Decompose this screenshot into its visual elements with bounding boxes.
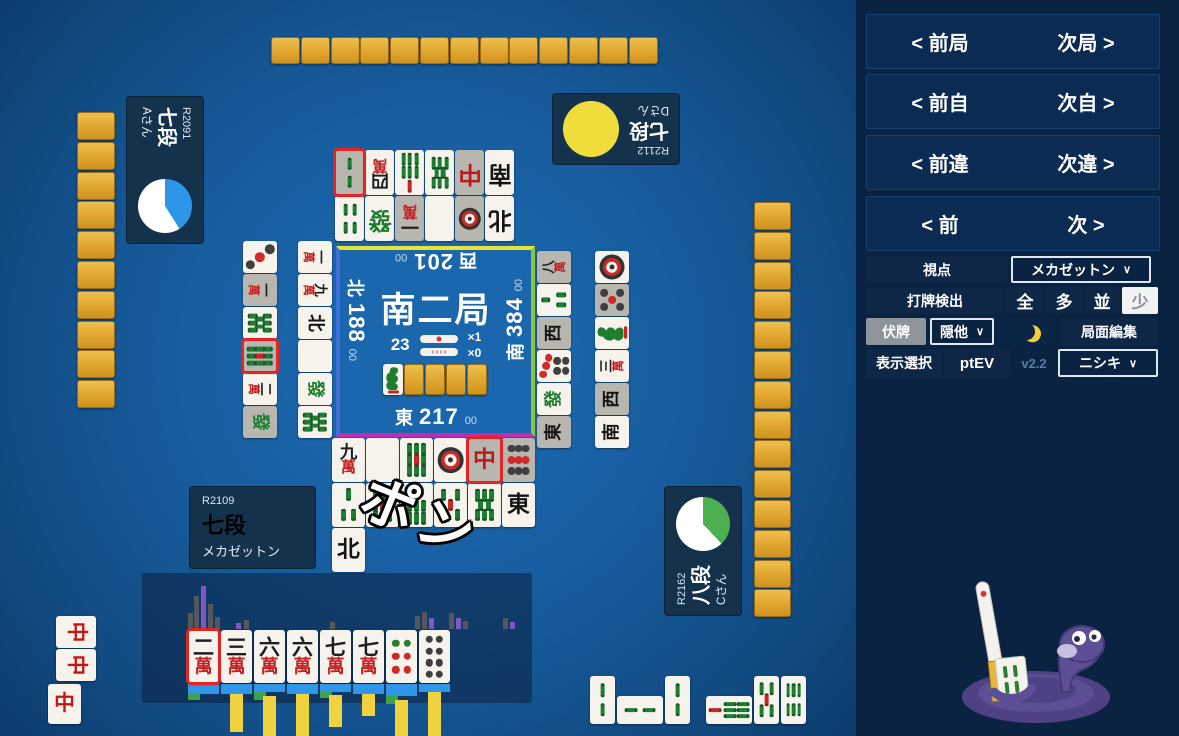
wall-tile-back (77, 231, 115, 259)
wall-tile-back (754, 500, 791, 528)
next-kyoku-button[interactable]: 次局 > (1013, 15, 1159, 68)
hand-tile-7m[interactable]: 七萬 (353, 630, 384, 683)
wall-tile-back (569, 37, 598, 64)
ev-bar-yellow (263, 696, 276, 736)
wall-tile-back (754, 381, 791, 409)
discard-tile-F: 發 (537, 383, 571, 415)
prev-self-turn-button[interactable]: < 前自 (867, 75, 1013, 128)
discard-tile-1p (595, 251, 629, 283)
ev-bar-yellow (230, 694, 243, 732)
step-nav: < 前 次 > (866, 196, 1160, 251)
wall-tile-back (77, 291, 115, 319)
ev-bar-blue (320, 684, 351, 692)
policy-bar-gray (463, 621, 468, 629)
discard-tile-N: 北 (485, 196, 514, 241)
player-panel-top: R2112 七段 Dさん (553, 94, 679, 164)
discard-tile-8s (425, 150, 454, 195)
discard-tile-1m: 一萬 (395, 196, 424, 241)
hundred-stick-icon (420, 348, 458, 356)
hide-others-select[interactable]: 隠他∨ (930, 318, 994, 345)
control-panel: < 前局 次局 > < 前自 次自 > < 前違 次違 > < 前 次 > 視点… (856, 0, 1179, 736)
discard-detect-label: 打牌検出 (866, 287, 1004, 314)
wall-tile-back (754, 262, 791, 290)
mahjong-replay-viewer: { "nav": {"rows": [ {"prev": "< 前局", "ne… (0, 0, 1179, 736)
discard-tile-1m: 一萬 (298, 241, 332, 273)
wall-tile-back (539, 37, 568, 64)
discard-tile-1s (595, 317, 629, 349)
discard-tile-7s (395, 150, 424, 195)
wall-tile-back (509, 37, 538, 64)
wall-tile-back (754, 232, 791, 260)
point-sticks (420, 335, 458, 356)
wall-tile-back (450, 37, 479, 64)
policy-bar-gray (503, 618, 508, 629)
dora-tile-back (446, 364, 466, 395)
sticks-row: 23 ×1 ×0 (346, 330, 526, 360)
ev-bar-green (188, 694, 200, 700)
model-version: v2.2 (1012, 349, 1056, 377)
wall-tile-back (77, 321, 115, 349)
discard-tile-N: 北 (332, 528, 365, 572)
discard-tile-9m: 九萬 (332, 438, 365, 482)
ev-bar-blue (221, 684, 252, 694)
discard-tile-3s (537, 284, 571, 316)
prev-kyoku-button[interactable]: < 前局 (867, 15, 1013, 68)
policy-bar-gray (215, 617, 220, 629)
self-turn-nav: < 前自 次自 > (866, 74, 1160, 129)
discard-tile-9s (243, 340, 277, 372)
policy-bar-gray (188, 613, 193, 629)
policy-bar-gray (208, 604, 213, 629)
policy-bar-purple (236, 623, 241, 629)
kyoku-nav: < 前局 次局 > (866, 14, 1160, 69)
policy-bar-gray (449, 613, 454, 629)
placement-pie-chart (563, 101, 619, 157)
meld-tile-7s (706, 696, 752, 724)
wall-tile-back (271, 37, 300, 64)
hand-tile-8p[interactable] (419, 630, 450, 683)
discard-tile-P (425, 196, 454, 241)
night-mode-toggle[interactable] (996, 318, 1056, 345)
dora-indicator-tile-1s (383, 364, 403, 395)
wall-tile-back (754, 202, 791, 230)
player-panel-left: R2091 七段 Aさん (127, 97, 203, 243)
wall-tile-back (77, 261, 115, 289)
chevron-down-icon: ∨ (976, 325, 984, 338)
wall-tile-back (754, 351, 791, 379)
wall-tile-back (754, 560, 791, 588)
player-rating: R2109 (202, 495, 234, 507)
discard-tile-4s (335, 196, 364, 241)
meld-tile-2s (617, 696, 663, 724)
board-edit-button[interactable]: 局面編集 (1060, 318, 1158, 345)
wall-tile-back (390, 37, 419, 64)
wall-tile-back (480, 37, 509, 64)
hand-tile-2m[interactable]: 二萬 (188, 630, 219, 683)
policy-bar-purple (429, 618, 434, 629)
meld-tile-2s (590, 676, 615, 724)
detect-option-all[interactable]: 全 (1006, 287, 1044, 314)
policy-bar-gray (422, 612, 427, 629)
detect-option-many[interactable]: 多 (1046, 287, 1082, 314)
wall-tile-back (77, 350, 115, 378)
prev-step-button[interactable]: < 前 (867, 197, 1013, 250)
discard-tile-3p (243, 241, 277, 273)
discard-tile-E: 東 (537, 416, 571, 448)
player-name: Cさん (715, 557, 729, 605)
discard-tile-8s (243, 307, 277, 339)
discard-tile-S: 南 (485, 150, 514, 195)
hand-tile-7m[interactable]: 七萬 (320, 630, 351, 683)
player-rating: R2162 (676, 557, 690, 605)
discard-tile-W: 西 (595, 383, 629, 415)
discard-tile-5p (595, 284, 629, 316)
wall-tile-back (754, 589, 791, 617)
discard-tile-7p (537, 350, 571, 382)
score-south: 南38400 (502, 250, 526, 390)
discard-tile-F: 發 (365, 196, 394, 241)
meld-tile-C: 中 (56, 616, 96, 648)
player-rank: 七段 (153, 107, 178, 173)
next-step-button[interactable]: 次 > (1013, 197, 1159, 250)
placement-pie-chart (676, 497, 730, 551)
policy-bar-gray (330, 622, 335, 629)
discard-tile-8s (298, 406, 332, 438)
moon-icon (1015, 321, 1036, 342)
riichi-stick-icon (420, 335, 458, 343)
discard-tile-9m: 九萬 (298, 274, 332, 306)
model-select[interactable]: ニシキ∨ (1058, 349, 1158, 377)
chevron-down-icon: ∨ (1123, 263, 1131, 276)
policy-bar-gray (244, 620, 249, 629)
discard-tile-2s (335, 150, 364, 195)
meld-tile-2s (665, 676, 690, 724)
wall-tile-back (629, 37, 658, 64)
placement-pie-chart (138, 179, 192, 233)
hundred-stick-count: ×0 (468, 346, 482, 360)
ev-bar-blue (287, 684, 318, 694)
wall-tile-back (420, 37, 449, 64)
discard-tile-1p (434, 438, 467, 482)
discard-tile-4m: 四萬 (365, 150, 394, 195)
mismatch-nav: < 前違 次違 > (866, 135, 1160, 190)
viewpoint-select[interactable]: メカゼットン∨ (1011, 256, 1151, 283)
policy-bar-gray (194, 596, 199, 629)
wall-tile-back (77, 112, 115, 140)
discard-tile-F: 發 (298, 373, 332, 405)
policy-bar-purple (510, 622, 515, 629)
discard-tile-S: 南 (595, 416, 629, 448)
wall-tile-back (331, 37, 360, 64)
discard-tile-2m: 二萬 (243, 373, 277, 405)
hand-tile-6p[interactable] (386, 630, 417, 683)
detect-option-few[interactable]: 少 (1122, 287, 1158, 314)
discard-tile-W: 西 (537, 317, 571, 349)
ev-bar-blue (188, 684, 219, 694)
wall-tile-back (77, 172, 115, 200)
wall-tile-back (77, 201, 115, 229)
player-name: Dさん (625, 102, 669, 116)
meld-tile-C: 中 (48, 684, 81, 724)
wall-tile-back (754, 321, 791, 349)
policy-bar-purple (201, 586, 206, 629)
player-name: メカゼットン (202, 541, 280, 560)
discard-tile-C: 中 (468, 438, 501, 482)
tiles-remaining-count: 23 (391, 335, 410, 355)
display-select-button[interactable]: 表示選択 (866, 349, 942, 377)
meld-tile-6s (781, 676, 806, 724)
next-self-turn-button[interactable]: 次自 > (1013, 75, 1159, 128)
ev-bar-blue (353, 684, 384, 694)
score-east: 東21700 (366, 404, 506, 428)
wall-tile-back (77, 380, 115, 408)
player-panel-self: R2109 七段 メカゼットン (190, 487, 315, 568)
viewpoint-label: 視点 (866, 256, 1008, 283)
facedown-toggle[interactable]: 伏牌 (866, 318, 926, 345)
discard-tile-3m: 三萬 (595, 350, 629, 382)
discard-tile-F: 發 (243, 406, 277, 438)
player-name: Aさん (138, 107, 152, 173)
dora-tile-back (425, 364, 445, 395)
snake-mascot (934, 568, 1119, 733)
wall-tile-back (754, 291, 791, 319)
ev-bar-yellow (395, 700, 408, 736)
player-rank: 八段 (690, 557, 715, 605)
player-rank: 七段 (625, 117, 669, 142)
player-rating: R2112 (625, 142, 669, 156)
ev-bar-yellow (428, 692, 441, 736)
dora-tile-back (467, 364, 487, 395)
player-rating: R2091 (178, 107, 192, 173)
ev-bar-blue (419, 684, 450, 692)
wall-tile-back (754, 440, 791, 468)
wall-tile-back (360, 37, 389, 64)
ev-bar-yellow (329, 695, 342, 727)
ev-bar-blue (386, 684, 417, 696)
discard-tile-P (298, 340, 332, 372)
meld-tile-C: 中 (56, 649, 96, 681)
hand-tile-6m[interactable]: 六萬 (287, 630, 318, 683)
riichi-stick (975, 581, 1003, 668)
player-panel-right: R2162 八段 Cさん (665, 487, 741, 615)
discard-tile-1p (455, 196, 484, 241)
meld-tile-5s (754, 676, 779, 724)
dora-tile-back (404, 364, 424, 395)
ev-bar-yellow (296, 694, 309, 736)
policy-bar-purple (456, 618, 461, 629)
wall-tile-back (754, 470, 791, 498)
wall-tile-back (599, 37, 628, 64)
discard-tile-N: 北 (298, 307, 332, 339)
discard-tile-9p (502, 438, 535, 482)
score-north: 北18800 (345, 250, 369, 390)
next-mismatch-button[interactable]: 次違 > (1013, 136, 1159, 189)
discard-tile-8m: 八萬 (537, 251, 571, 283)
discard-tile-C: 中 (455, 150, 484, 195)
wall-tile-back (754, 411, 791, 439)
wall-tile-back (77, 142, 115, 170)
wall-tile-back (754, 530, 791, 558)
chevron-down-icon: ∨ (1129, 357, 1137, 370)
score-west: 西20100 (366, 250, 506, 274)
wall-tile-back (301, 37, 330, 64)
detect-option-normal[interactable]: 並 (1084, 287, 1120, 314)
riichi-stick-count: ×1 (468, 330, 482, 344)
ev-bar-blue (254, 684, 285, 692)
ev-bar-yellow (362, 694, 375, 716)
player-rank: 七段 (202, 508, 246, 540)
policy-bar-gray (415, 616, 420, 629)
hand-tile-3m[interactable]: 三萬 (221, 630, 252, 683)
ptev-button[interactable]: ptEV (944, 349, 1010, 377)
hand-tile-6m[interactable]: 六萬 (254, 630, 285, 683)
discard-tile-1m: 一萬 (243, 274, 277, 306)
prev-mismatch-button[interactable]: < 前違 (867, 136, 1013, 189)
